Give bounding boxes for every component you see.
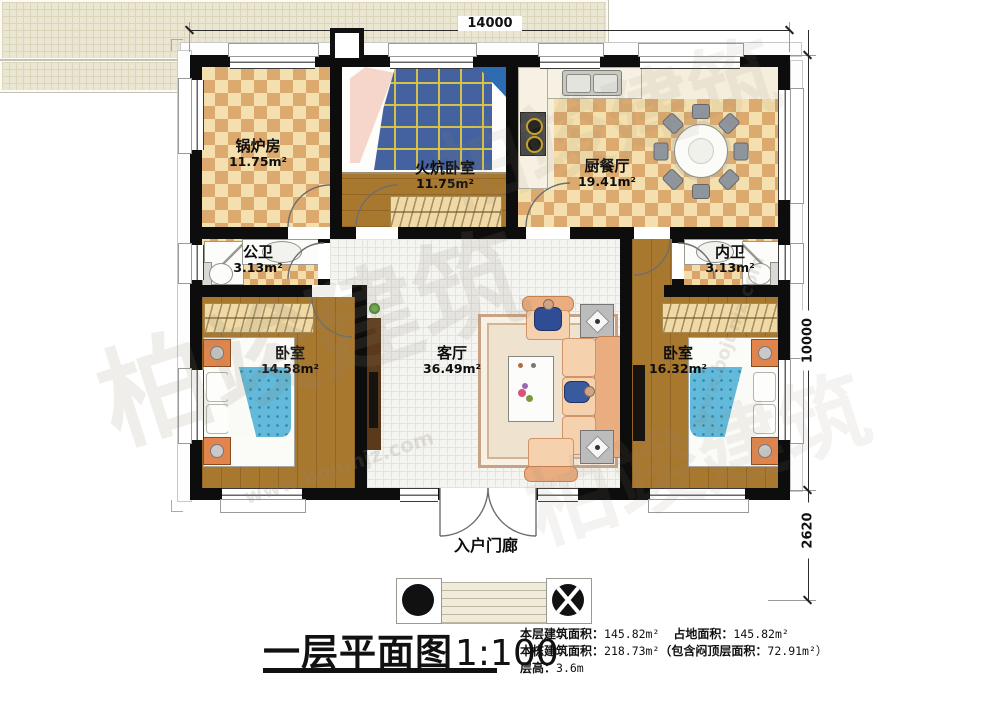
room-label-porch: 入户门廊: [454, 537, 518, 555]
dimension-label-side: 10000: [801, 311, 816, 371]
room-label-boiler: 锅炉房 11.75m²: [229, 138, 287, 169]
area-stats: 本层建筑面积：145.82m²占地面积：145.82m² 本栋建筑面积：218.…: [520, 626, 827, 677]
room-label-living: 客厅 36.49m²: [423, 345, 481, 376]
stats-line-2: 本栋建筑面积：218.73m²（包含闷顶层面积：72.91m²）: [520, 643, 827, 660]
room-label-kang: 火炕卧室 11.75m²: [415, 160, 475, 191]
dimension-label-top: 14000: [458, 16, 522, 31]
room-label-bath-private: 内卫 3.13m²: [705, 244, 754, 275]
room-label-bedroom-left: 卧室 14.58m²: [261, 345, 319, 376]
plan-title-text: 一层平面图: [263, 622, 453, 676]
room-label-bath-public: 公卫 3.13m²: [233, 244, 282, 275]
door-swing-arcs: [0, 0, 1000, 706]
plan-title: 一层平面图1:100: [263, 622, 559, 676]
room-label-bedroom-right: 卧室 16.32m²: [649, 345, 707, 376]
floor-plan: 14000 10000 2620: [0, 0, 1000, 706]
stats-line-1: 本层建筑面积：145.82m²占地面积：145.82m²: [520, 626, 827, 643]
stats-line-3: 层高：3.6m: [520, 660, 827, 677]
dimension-label-porch: 2620: [801, 503, 816, 559]
room-label-kitchen: 厨餐厅 19.41m²: [578, 158, 636, 189]
